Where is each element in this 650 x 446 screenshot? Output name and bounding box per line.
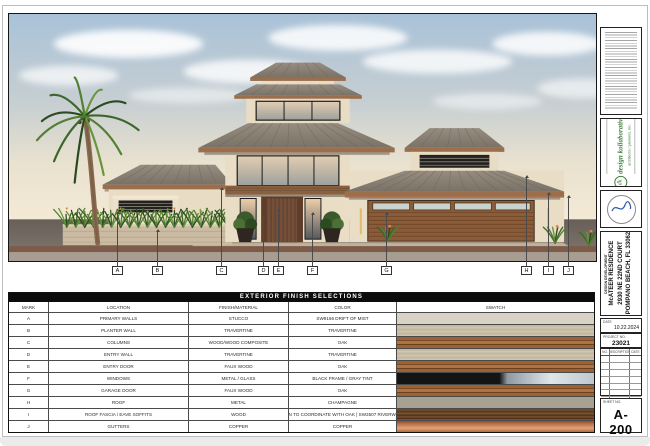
architect-seal-block (600, 190, 642, 228)
callout-I: I (543, 266, 554, 275)
firm-logo-icon: dk (615, 176, 628, 186)
sheet-number-block: SHEET NO. A-200 (600, 398, 642, 433)
callout-leader-E (278, 209, 279, 266)
callout-leader-F (312, 213, 313, 266)
cell-mark: J (9, 421, 49, 432)
cell-mark: I (9, 409, 49, 420)
project-address-line1: 2930 NE 22ND COURT (617, 232, 626, 314)
cell-swatch (397, 397, 594, 408)
cell-mark: A (9, 313, 49, 324)
curb (9, 246, 596, 252)
cell-location: GARAGE DOOR (49, 385, 189, 396)
revision-row-empty (601, 356, 641, 363)
cell-swatch (397, 421, 594, 432)
finish-table-row: GGARAGE DOORFAUX WOODOAK (9, 384, 594, 396)
swatch-glass (397, 373, 594, 384)
street (9, 252, 596, 261)
finish-table: EXTERIOR FINISH SELECTIONS MARK LOCATION… (8, 292, 595, 433)
swatch-riverwood (397, 409, 594, 420)
finish-table-row: IROOF FASCIA / EAVE SOFFITSWOODSTAIN TO … (9, 408, 594, 420)
col-swatch: SWATCH (397, 302, 594, 312)
finish-table-header: MARK LOCATION FINISH/MATERIAL COLOR SWAT… (9, 302, 594, 312)
sheet-number-label: SHEET NO. (603, 400, 639, 404)
swatch-copper (397, 421, 594, 432)
finish-table-row: FWINDOWSMETAL / GLASSBLACK FRAME / GRAY … (9, 372, 594, 384)
finish-table-row: CCOLUMNSWOOD/WOOD COMPOSITEOAK (9, 336, 594, 348)
finish-table-row: BPLANTER WALLTRAVERTINETRAVERTINE (9, 324, 594, 336)
finish-table-row: APRIMARY WALLSSTUCCOSW9166 DRIFT OF MIST (9, 312, 594, 324)
cell-finish: WOOD (189, 409, 289, 420)
cell-color: BLACK FRAME / GRAY TINT (289, 373, 397, 384)
project-info-block: DESIGN DEVELOPMENT McATEER RESIDENCE 293… (600, 231, 642, 316)
date-value: 10.22.2024 (603, 325, 639, 331)
swatch-travertine (397, 325, 594, 336)
revision-row-empty (601, 384, 641, 391)
cell-color: OAK (289, 361, 397, 372)
general-notes-block (600, 27, 642, 115)
callout-leader-J (568, 196, 569, 266)
swatch-oak (397, 337, 594, 348)
project-address-line2: POMPANO BEACH, FL 33062 (625, 232, 634, 314)
sconce-left (360, 208, 362, 234)
cell-swatch (397, 349, 594, 360)
cell-color: OAK (289, 385, 397, 396)
cell-color: OAK (289, 337, 397, 348)
col-mark: MARK (9, 302, 49, 312)
cell-location: ENTRY DOOR (49, 361, 189, 372)
cell-finish: COPPER (189, 421, 289, 432)
firm-name: design kollaborative (617, 119, 625, 174)
cell-color: COPPER (289, 421, 397, 432)
col-finish: FINISH/MATERIAL (189, 302, 289, 312)
cell-location: COLUMNS (49, 337, 189, 348)
clerestory-louver-right (420, 155, 490, 168)
date-label: DATE (603, 320, 639, 324)
revision-row-empty (601, 390, 641, 397)
cell-finish: STUCCO (189, 313, 289, 324)
cupola-windows (256, 101, 340, 120)
rev-col-no: NO. (601, 349, 610, 355)
cell-mark: E (9, 361, 49, 372)
cell-mark: F (9, 373, 49, 384)
finish-table-row: JGUTTERSCOPPERCOPPER (9, 420, 594, 432)
project-number-block: PROJECT NO. 23021 (600, 333, 642, 348)
revision-row-empty (601, 370, 641, 377)
callout-leader-C (221, 188, 222, 266)
swatch-oak (397, 385, 594, 396)
cell-swatch (397, 409, 594, 420)
finish-table-row: DENTRY WALLTRAVERTINETRAVERTINE (9, 348, 594, 360)
callout-H: H (521, 266, 532, 275)
cell-mark: C (9, 337, 49, 348)
cell-color: TRAVERTINE (289, 325, 397, 336)
entry-door (267, 199, 297, 243)
callout-leader-D (263, 216, 264, 266)
finish-table-title: EXTERIOR FINISH SELECTIONS (9, 293, 594, 302)
cell-finish: WOOD/WOOD COMPOSITE (189, 337, 289, 348)
front-elevation-scene (9, 14, 596, 261)
sheet-number: A-200 (603, 407, 639, 437)
cell-location: WINDOWS (49, 373, 189, 384)
cell-swatch (397, 385, 594, 396)
swatch-stucco (397, 313, 594, 324)
project-number-label: PROJECT NO. (603, 335, 639, 339)
cell-swatch (397, 325, 594, 336)
callout-B: B (152, 266, 163, 275)
cell-finish: FAUX WOOD (189, 385, 289, 396)
cell-color: CHAMPAGNE (289, 397, 397, 408)
notes-fine-print (605, 32, 637, 110)
col-location: LOCATION (49, 302, 189, 312)
cell-color: TRAVERTINE (289, 349, 397, 360)
callout-F: F (307, 266, 318, 275)
project-number-value: 23021 (603, 340, 639, 347)
callout-G: G (381, 266, 392, 275)
cell-location: PRIMARY WALLS (49, 313, 189, 324)
cell-location: GUTTERS (49, 421, 189, 432)
drawing-sheet: EXTERIOR FINISH SELECTIONS MARK LOCATION… (0, 0, 650, 446)
rev-col-description: DESCRIPTION (610, 349, 630, 355)
cell-finish: METAL / GLASS (189, 373, 289, 384)
project-name: McATEER RESIDENCE (608, 232, 617, 314)
callout-leader-B (157, 230, 158, 266)
cell-location: ENTRY WALL (49, 349, 189, 360)
cell-mark: B (9, 325, 49, 336)
callout-leader-H (526, 176, 527, 266)
revision-row-empty (601, 363, 641, 370)
architect-seal-icon (607, 195, 636, 224)
swatch-travertine (397, 349, 594, 360)
cell-finish: TRAVERTINE (189, 325, 289, 336)
col-color: COLOR (289, 302, 397, 312)
finish-table-row: EENTRY DOORFAUX WOODOAK (9, 360, 594, 372)
callout-J: J (563, 266, 574, 275)
cell-location: ROOF FASCIA / EAVE SOFFITS (49, 409, 189, 420)
callout-A: A (112, 266, 123, 275)
cell-swatch (397, 361, 594, 372)
cell-mark: D (9, 349, 49, 360)
firm-subtitle: architects / planners, inc. (628, 119, 633, 174)
callout-C: C (216, 266, 227, 275)
cell-swatch (397, 313, 594, 324)
callout-leader-I (548, 193, 549, 266)
cell-swatch (397, 373, 594, 384)
cell-finish: METAL (189, 397, 289, 408)
revision-table: NO. DESCRIPTION DATE (600, 348, 642, 396)
cell-location: ROOF (49, 397, 189, 408)
cell-color: SW9166 DRIFT OF MIST (289, 313, 397, 324)
finish-table-row: HROOFMETALCHAMPAGNE (9, 396, 594, 408)
elevation-rendering (8, 13, 597, 262)
cell-mark: G (9, 385, 49, 396)
date-block: DATE 10.22.2024 (600, 318, 642, 333)
callout-leader-G (386, 213, 387, 266)
callout-leader-A (117, 212, 118, 266)
swatch-champagne (397, 397, 594, 408)
window-bottom-edge (0, 437, 650, 446)
callout-D: D (258, 266, 269, 275)
cell-location: PLANTER WALL (49, 325, 189, 336)
copper-gutter (345, 196, 564, 198)
cell-swatch (397, 337, 594, 348)
rev-col-date: DATE (630, 349, 641, 355)
cell-mark: H (9, 397, 49, 408)
cell-finish: TRAVERTINE (189, 349, 289, 360)
cell-finish: FAUX WOOD (189, 361, 289, 372)
canopy-wood-band (225, 186, 350, 195)
revision-row-empty (601, 377, 641, 384)
callout-E: E (273, 266, 284, 275)
swatch-oak (397, 361, 594, 372)
cell-color: STAIN TO COORDINATE WITH OAK | SW3507 RI… (289, 409, 397, 420)
firm-logo-block: dk design kollaborative architects / pla… (600, 118, 642, 187)
